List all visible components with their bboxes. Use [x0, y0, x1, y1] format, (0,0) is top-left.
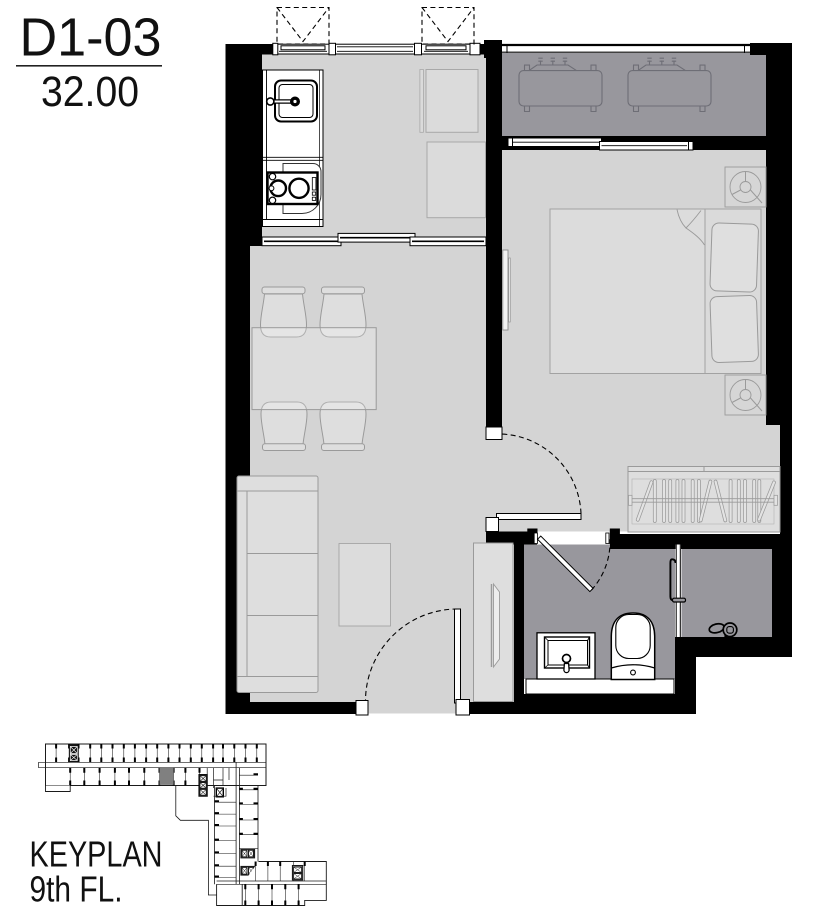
svg-text:9th FL.: 9th FL.	[30, 869, 123, 910]
svg-text:D1-03: D1-03	[20, 8, 162, 68]
svg-text:32.00: 32.00	[41, 68, 139, 116]
